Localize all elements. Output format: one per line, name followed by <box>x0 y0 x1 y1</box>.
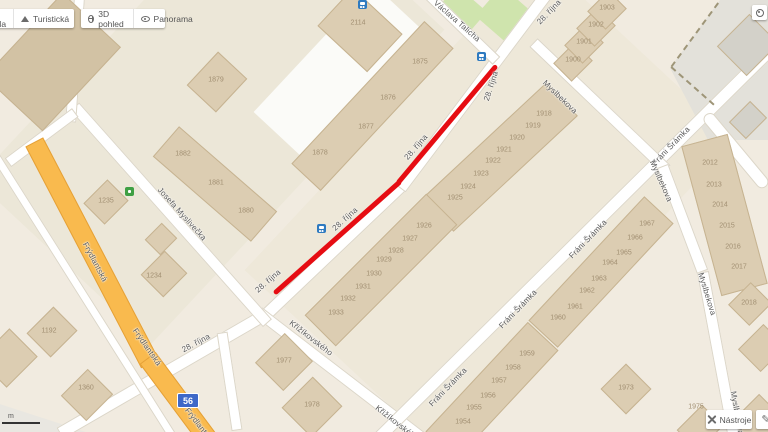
building-number-label: 1975 <box>688 404 704 411</box>
building-number-label: 1903 <box>599 5 615 12</box>
bus-stop-icon[interactable] <box>317 224 326 233</box>
street-name-label: Myslbekova <box>696 272 718 317</box>
building <box>681 134 767 296</box>
building-number-label: 1961 <box>567 304 583 311</box>
building-number-label: 1876 <box>380 95 396 102</box>
building-number-label: 1965 <box>616 250 632 257</box>
3d-button-label: 3D pohled <box>98 9 125 29</box>
tools-button-label: Nástroje <box>720 415 752 425</box>
building-number-label: 1921 <box>496 147 512 154</box>
tools-button[interactable]: Nástroje <box>706 410 752 429</box>
building-number-label: 1234 <box>146 273 162 280</box>
building-number-label: 1933 <box>328 310 344 317</box>
building-number-label: 1192 <box>41 328 56 335</box>
building-number-label: 1955 <box>466 405 482 412</box>
building-number-label: 1960 <box>550 315 566 322</box>
building-number-label: 2013 <box>706 182 722 189</box>
building-number-label: 1977 <box>276 358 292 365</box>
tourist-map-button[interactable]: Turistická <box>13 9 76 28</box>
road-number-badge: 56 <box>177 393 199 408</box>
building-number-label: 1930 <box>366 271 382 278</box>
building-number-label: 1882 <box>175 151 191 158</box>
panorama-button[interactable]: Panorama <box>133 9 200 28</box>
building-number-label: 2014 <box>712 202 728 209</box>
building-number-label: 1966 <box>627 235 643 242</box>
building-number-label: 2017 <box>731 264 747 271</box>
building-number-label: 1918 <box>536 111 552 118</box>
map-tiles: 2114187518761877187818791880188118821900… <box>0 0 768 432</box>
building-number-label: 1963 <box>591 276 607 283</box>
building-number-label: 1931 <box>355 284 371 291</box>
building-number-label: 1902 <box>588 22 604 29</box>
target-icon <box>756 9 764 17</box>
scale-label: m <box>8 413 40 420</box>
bus-stop-icon[interactable] <box>358 0 367 9</box>
building-number-label: 2114 <box>350 20 365 27</box>
aerial-button-label: Z letadla <box>0 9 6 29</box>
building-number-label: 1925 <box>447 195 463 202</box>
building-number-label: 1967 <box>639 221 655 228</box>
tools-icon <box>707 415 716 424</box>
view-toolbar: 3D pohled Panorama <box>81 9 165 28</box>
layer-toolbar: Z letadla Turistická <box>0 9 74 28</box>
building-number-label: 2012 <box>702 160 718 167</box>
building-number-label: 1926 <box>416 223 432 230</box>
building-number-label: 1954 <box>455 419 471 426</box>
3d-view-button[interactable]: 3D pohled <box>81 9 133 28</box>
building-number-label: 1919 <box>525 123 541 130</box>
building-number-label: 1928 <box>388 248 404 255</box>
panorama-button-label: Panorama <box>154 14 193 24</box>
globe-icon <box>88 15 94 23</box>
building-number-label: 1879 <box>208 77 224 84</box>
building-number-label: 1973 <box>618 385 634 392</box>
building-number-label: 1927 <box>402 236 418 243</box>
pencil-icon: ✎ <box>761 413 768 426</box>
building-number-label: 1360 <box>78 385 94 392</box>
bus-stop-icon[interactable] <box>477 52 486 61</box>
building-number-label: 1878 <box>312 150 328 157</box>
building-number-label: 2018 <box>741 300 757 307</box>
building-number-label: 2015 <box>719 223 735 230</box>
building-number-label: 1901 <box>576 39 592 46</box>
building-number-label: 1932 <box>340 296 356 303</box>
poi-icon[interactable] <box>125 187 134 196</box>
locate-button[interactable] <box>752 5 767 20</box>
building-number-label: 1957 <box>491 378 507 385</box>
building-number-label: 1880 <box>238 208 254 215</box>
eye-icon <box>141 16 150 22</box>
scale-bar <box>2 422 40 424</box>
mountain-icon <box>21 16 29 22</box>
building-number-label: 1956 <box>480 393 496 400</box>
tourist-button-label: Turistická <box>33 14 69 24</box>
building-number-label: 1978 <box>304 402 320 409</box>
building-number-label: 1964 <box>602 260 618 267</box>
map-scale: m <box>2 413 40 424</box>
building-number-label: 1923 <box>473 171 489 178</box>
building-number-label: 1235 <box>98 198 114 205</box>
edit-button[interactable]: ✎ <box>756 410 768 429</box>
building-number-label: 1881 <box>208 180 224 187</box>
map-canvas[interactable]: 2114187518761877187818791880188118821900… <box>0 0 768 432</box>
aerial-view-button[interactable]: Z letadla <box>0 9 13 28</box>
building-number-label: 1924 <box>460 184 476 191</box>
building-number-label: 1900 <box>565 57 581 64</box>
building <box>738 324 768 372</box>
street-road <box>217 331 243 431</box>
building-number-label: 1929 <box>376 257 392 264</box>
building-number-label: 1958 <box>505 365 521 372</box>
building-number-label: 2016 <box>725 244 741 251</box>
building-number-label: 1920 <box>509 135 525 142</box>
building-number-label: 1875 <box>412 59 428 66</box>
building-number-label: 1962 <box>579 288 595 295</box>
building-number-label: 1922 <box>485 158 501 165</box>
building-number-label: 1877 <box>358 124 374 131</box>
building-number-label: 1959 <box>519 351 535 358</box>
